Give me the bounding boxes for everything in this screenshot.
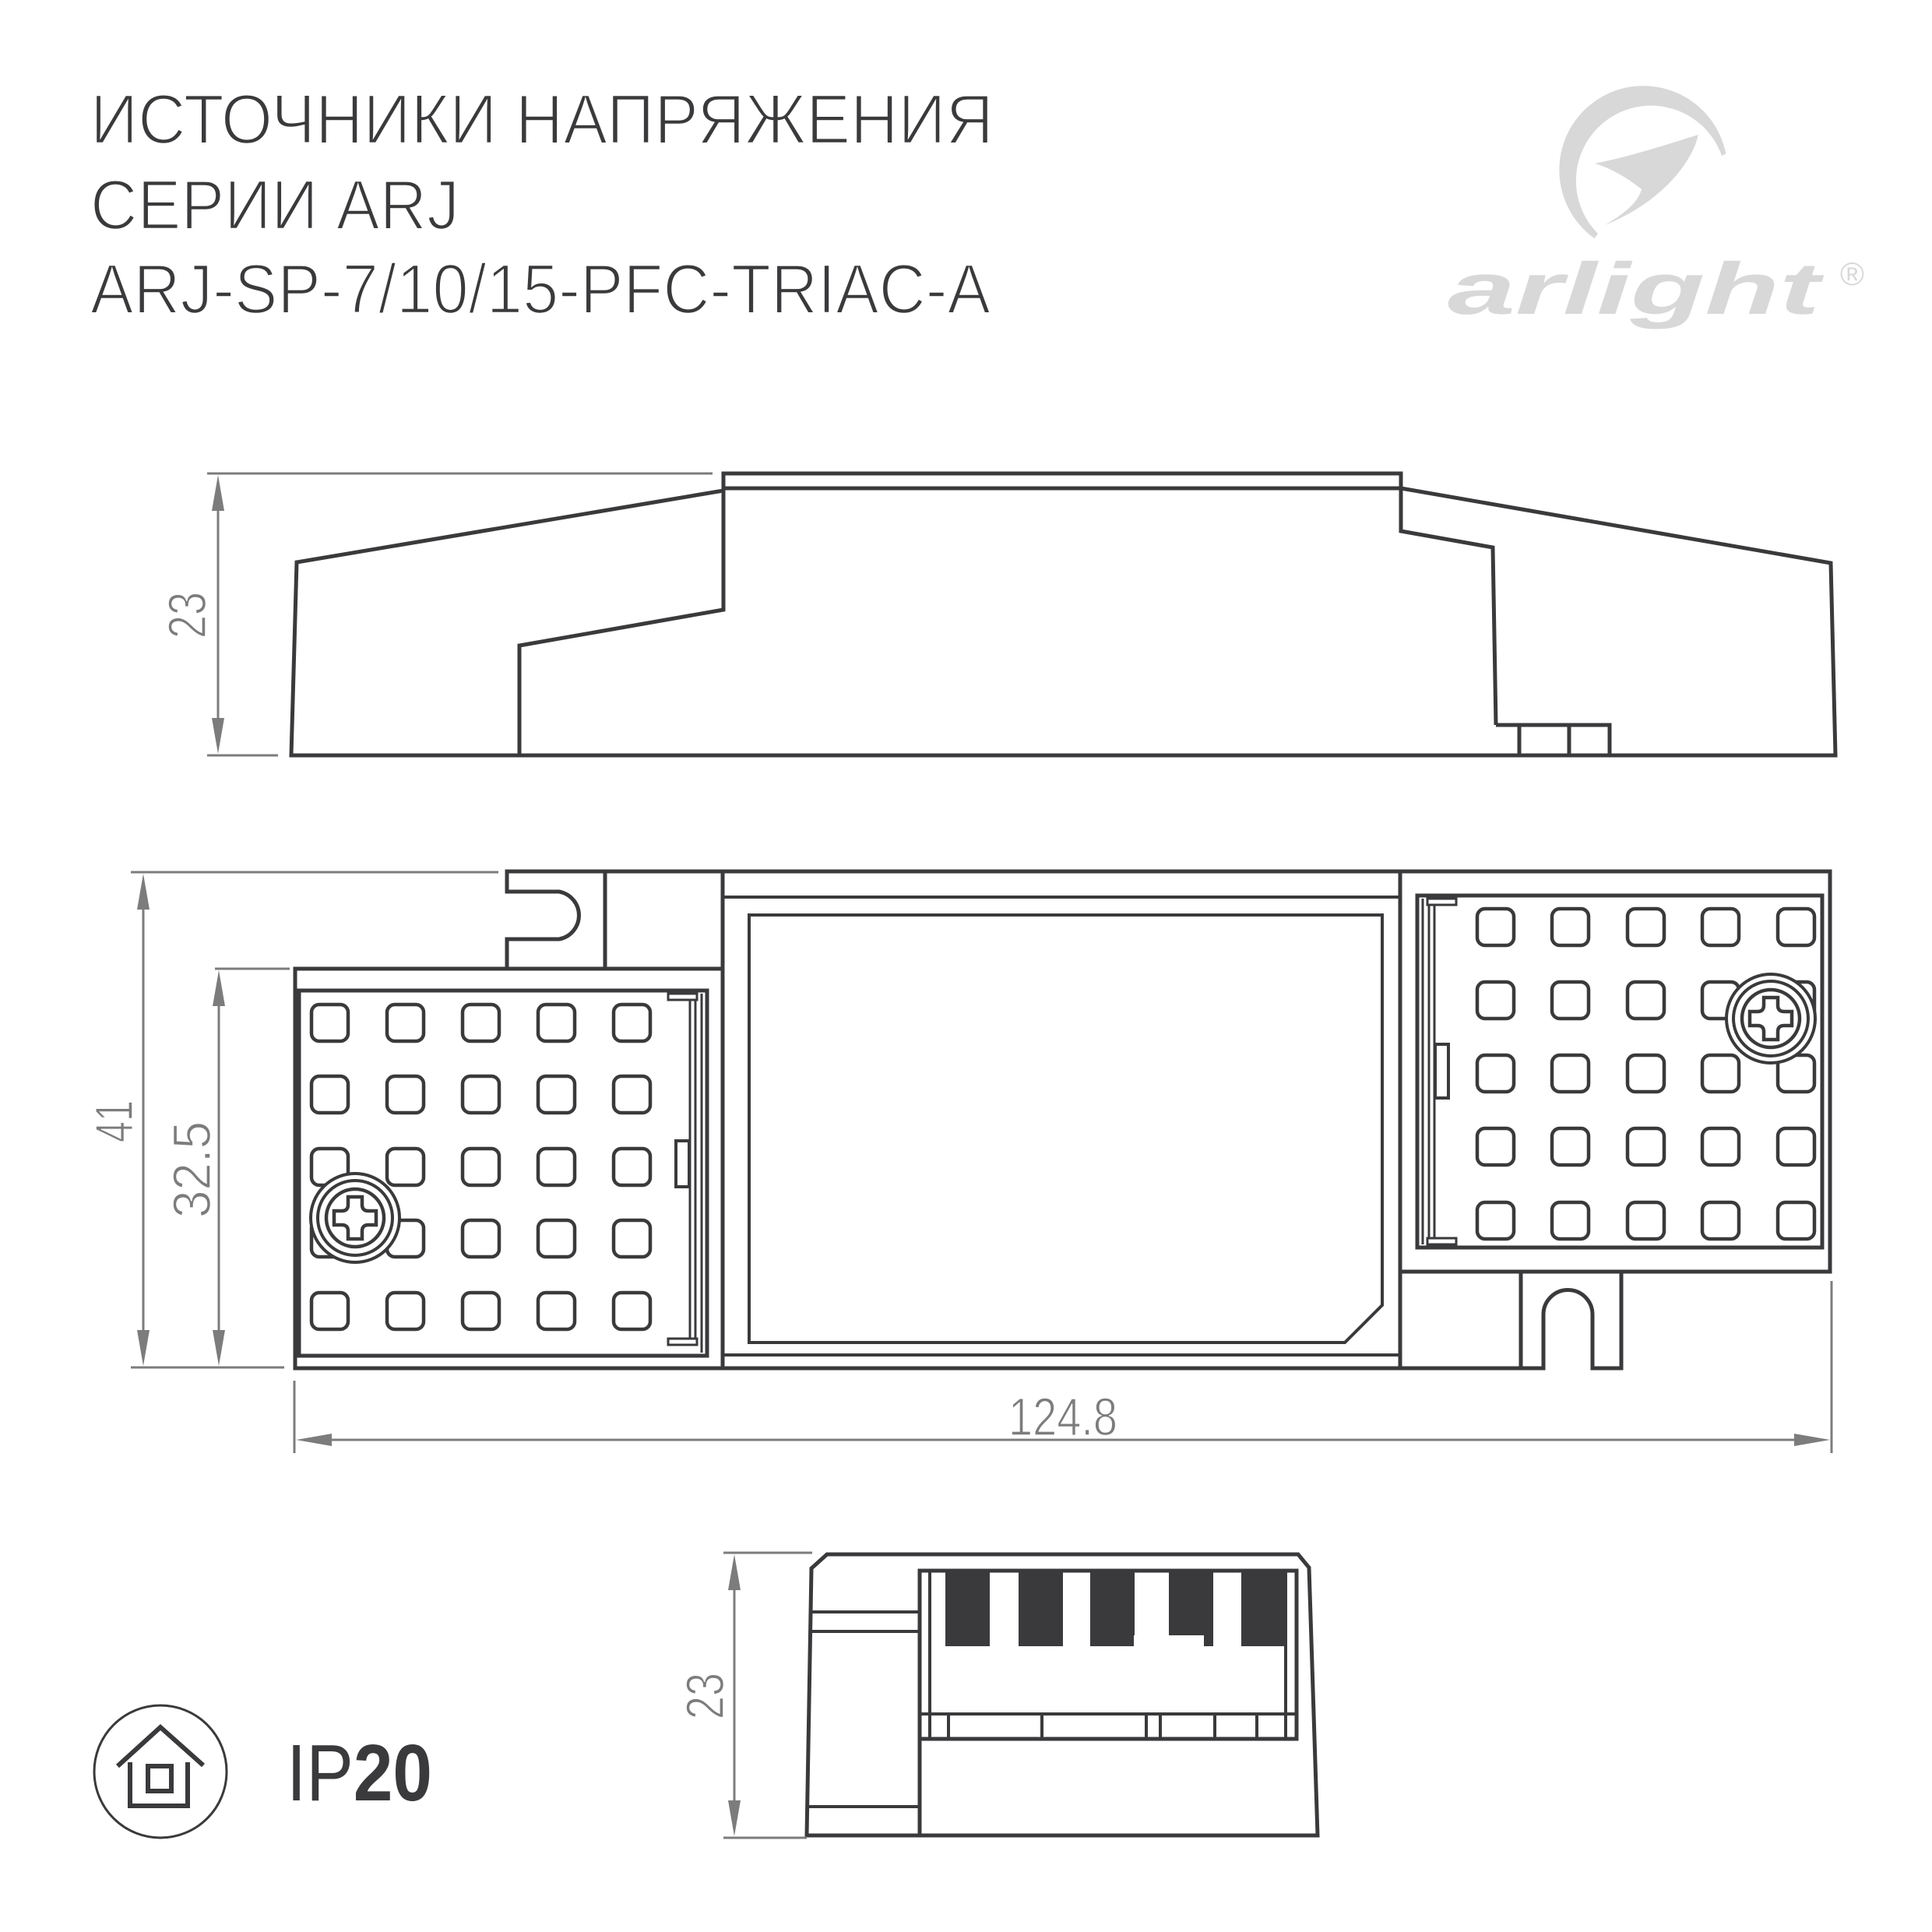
svg-text:СЕРИИ ARJ: СЕРИИ ARJ (90, 167, 459, 245)
svg-text:ARJ-SP-7/10/15-PFC-TRIAC-A: ARJ-SP-7/10/15-PFC-TRIAC-A (90, 251, 991, 329)
svg-text:IP20: IP20 (287, 1728, 432, 1818)
svg-text:32.5: 32.5 (162, 1121, 222, 1218)
svg-text:23: 23 (157, 592, 217, 639)
svg-text:124.8: 124.8 (1008, 1387, 1117, 1447)
svg-text:23: 23 (675, 1673, 735, 1719)
svg-text:arlight: arlight (1448, 248, 1825, 329)
svg-text:ИСТОЧНИКИ НАПРЯЖЕНИЯ: ИСТОЧНИКИ НАПРЯЖЕНИЯ (90, 81, 994, 159)
svg-text:®: ® (1840, 255, 1864, 292)
svg-text:41: 41 (84, 1100, 144, 1142)
